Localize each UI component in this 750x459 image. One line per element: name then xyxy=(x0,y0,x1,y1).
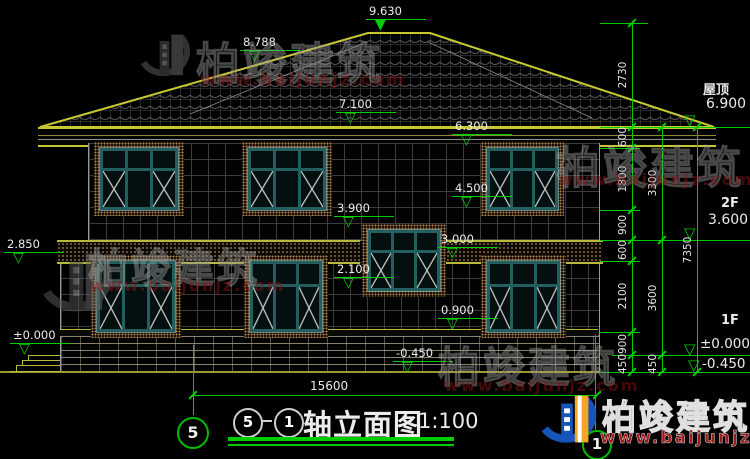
elev-marker-2f-sill: 4.500 ▽ xyxy=(452,182,512,197)
total-width-value: 15600 xyxy=(310,379,348,393)
dim-value: 450 xyxy=(647,354,659,374)
f2-label: 2F xyxy=(721,196,739,211)
elev-marker-ridge: 9.630 ▼ xyxy=(366,5,426,20)
brand-url: www.baijunjz.com xyxy=(600,428,750,448)
window-frame xyxy=(250,261,322,332)
title-axis-right-circle: 1 xyxy=(274,408,304,438)
triangle-icon: ▽ xyxy=(19,342,30,356)
window-2f-right xyxy=(481,142,564,216)
window-frame xyxy=(248,148,326,210)
drawing-scale: 1:100 xyxy=(418,409,479,433)
window-1f-right xyxy=(481,255,566,338)
title-underline-thin xyxy=(228,444,454,446)
axis-line-left xyxy=(193,345,194,415)
roof-level: 6.900 xyxy=(706,96,746,112)
ground-level: -0.450 xyxy=(702,356,746,372)
watermark-url-right: www.baijunjz.com xyxy=(558,170,750,189)
window-2f-left xyxy=(94,142,184,216)
brand-logo xyxy=(536,388,600,456)
triangle-icon: ▽ xyxy=(461,133,472,147)
f1-level: ±0.000 xyxy=(700,336,750,352)
triangle-icon: ▽ xyxy=(343,215,354,229)
triangle-icon: ▽ xyxy=(447,246,458,260)
elev-marker-2f-head: 6.300 ▽ xyxy=(452,120,512,135)
triangle-icon: ▽ xyxy=(13,251,24,265)
triangle-icon: ▽ xyxy=(447,317,458,331)
level-line xyxy=(600,23,648,24)
title-underline-thick xyxy=(228,437,454,441)
level-line xyxy=(600,261,640,262)
elev-marker-1f-head: 3.000 ▽ xyxy=(438,233,498,248)
title-dash xyxy=(262,420,272,422)
triangle-icon: ▽ xyxy=(684,113,696,128)
window-frame xyxy=(368,230,440,291)
cad-elevation-drawing: 9.630 ▼ 8.788 ▽ 7.100 ▽ 6.300 ▽ 4.500 ▽ … xyxy=(0,0,750,459)
elev-marker-1f-sill: 0.900 ▽ xyxy=(438,304,498,319)
dim-value: 900 xyxy=(617,215,629,235)
step-riser xyxy=(22,360,23,366)
level-line xyxy=(600,210,640,211)
elev-marker-eave: 7.100 ▽ xyxy=(336,98,396,113)
window-frame xyxy=(100,148,178,210)
f1-label: 1F xyxy=(721,313,739,328)
elev-marker-stair-sill: 2.100 ▽ xyxy=(334,263,394,278)
dim-value: 450 xyxy=(617,354,629,374)
step-line xyxy=(28,355,60,356)
triangle-icon: ▽ xyxy=(461,195,472,209)
dim-value: 7350 xyxy=(682,237,694,264)
title-axis-left-circle: 5 xyxy=(233,408,263,438)
f2-level: 3.600 xyxy=(708,212,748,228)
dim-value: 3600 xyxy=(647,285,659,312)
elev-marker-stair-head: 3.900 ▽ xyxy=(334,202,394,217)
dim-value: 2100 xyxy=(617,283,629,310)
step-riser xyxy=(16,365,17,372)
window-2f-middle xyxy=(242,142,332,216)
triangle-icon: ▽ xyxy=(684,342,696,357)
watermark-url-top: www.baijunjz.com xyxy=(200,70,406,90)
dim-value: 2730 xyxy=(617,62,629,89)
step-line xyxy=(10,371,60,372)
triangle-icon: ▽ xyxy=(343,276,354,290)
window-stair xyxy=(362,224,446,297)
window-frame xyxy=(487,261,560,332)
level-line xyxy=(600,332,640,333)
elev-marker-zero-left: ±0.000 ▽ xyxy=(10,329,70,344)
dim-value: 900 xyxy=(617,334,629,354)
watermark-logo-top xyxy=(138,26,192,90)
axis-bubble-left: 5 xyxy=(177,417,209,449)
triangle-icon: ▽ xyxy=(345,111,356,125)
window-frame xyxy=(487,148,558,210)
dim-chain-line xyxy=(632,23,633,372)
watermark-url-left: www.baijunjz.com xyxy=(90,276,285,295)
triangle-icon: ▽ xyxy=(402,360,413,374)
dim-value: 600 xyxy=(617,240,629,260)
